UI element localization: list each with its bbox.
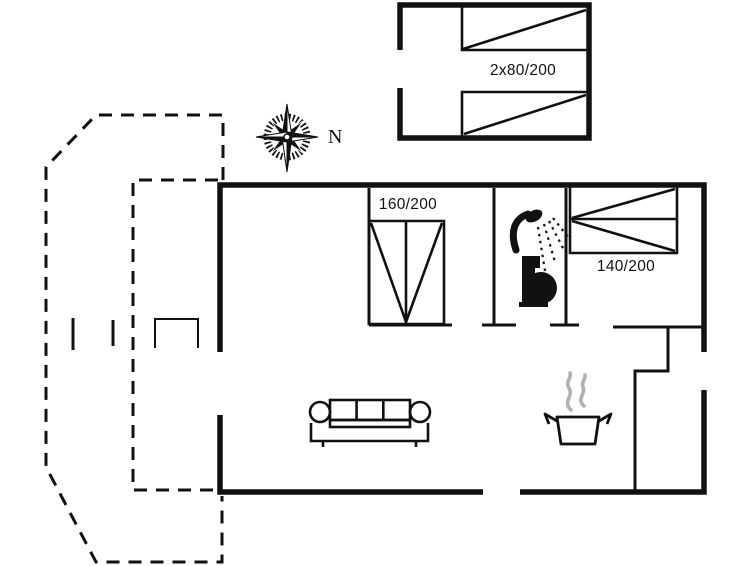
floor-plan-drawing	[0, 0, 755, 566]
shower-icon	[513, 207, 569, 271]
bedroom2-bed-size-label: 140/200	[576, 258, 676, 276]
floor-plan: 2x80/200 160/200 140/200 N	[0, 0, 755, 566]
annex-bed-top	[462, 7, 587, 50]
north-label: N	[328, 126, 342, 149]
compass-rose-icon	[256, 104, 318, 172]
sofa-icon	[310, 400, 430, 447]
bedroom1-bed-size-label: 160/200	[358, 196, 458, 214]
steam-icon	[568, 373, 586, 410]
bed-140	[570, 187, 677, 253]
double-bed-160	[369, 221, 444, 324]
terrace-step	[155, 319, 198, 348]
terrace-inner-outline	[133, 180, 218, 490]
annex-bed-bottom	[462, 92, 587, 136]
interior-walls	[369, 188, 702, 492]
cooking-pot-icon	[545, 414, 611, 444]
toilet-icon	[519, 256, 557, 307]
annex-bed-size-label: 2x80/200	[463, 62, 583, 80]
terrace-marks	[73, 318, 113, 350]
main-house-walls	[220, 185, 704, 492]
